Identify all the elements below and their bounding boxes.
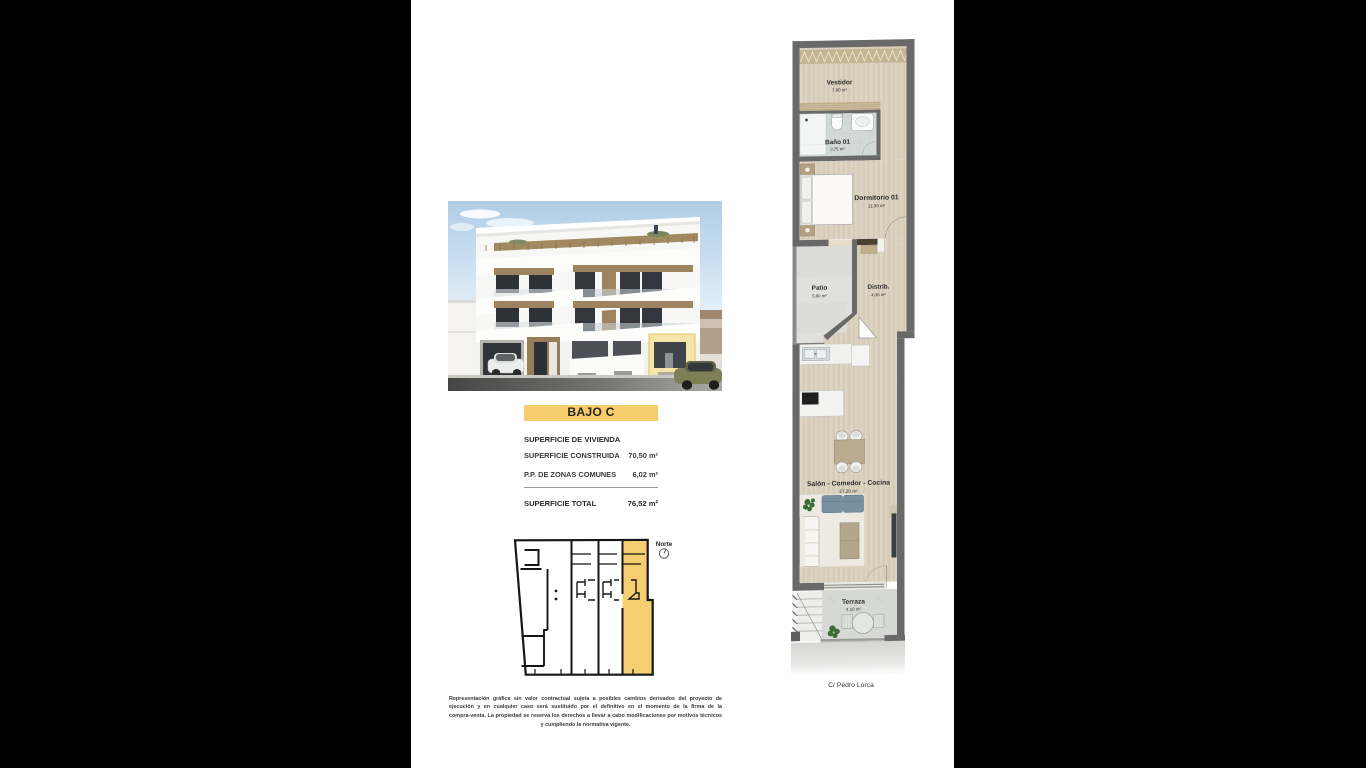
svg-text:5,90 m²: 5,90 m² [812, 293, 827, 298]
svg-text:3,75 m²: 3,75 m² [830, 146, 845, 151]
svg-text:Dormitorio 01: Dormitorio 01 [854, 194, 898, 202]
svg-text:Norte: Norte [656, 541, 673, 548]
svg-text:Vestidor: Vestidor [826, 79, 852, 86]
svg-text:4,10 m²: 4,10 m² [846, 607, 861, 612]
svg-text:Terraza: Terraza [842, 598, 865, 605]
svg-text:4,30 m²: 4,30 m² [871, 292, 886, 297]
svg-text:Patio: Patio [812, 285, 828, 292]
svg-text:27,20 m²: 27,20 m² [839, 489, 858, 494]
svg-text:11,30 m²: 11,30 m² [868, 203, 886, 208]
svg-text:Baño 01: Baño 01 [825, 139, 850, 146]
svg-text:Distrib.: Distrib. [867, 284, 889, 291]
svg-text:7,60 m²: 7,60 m² [832, 87, 847, 92]
